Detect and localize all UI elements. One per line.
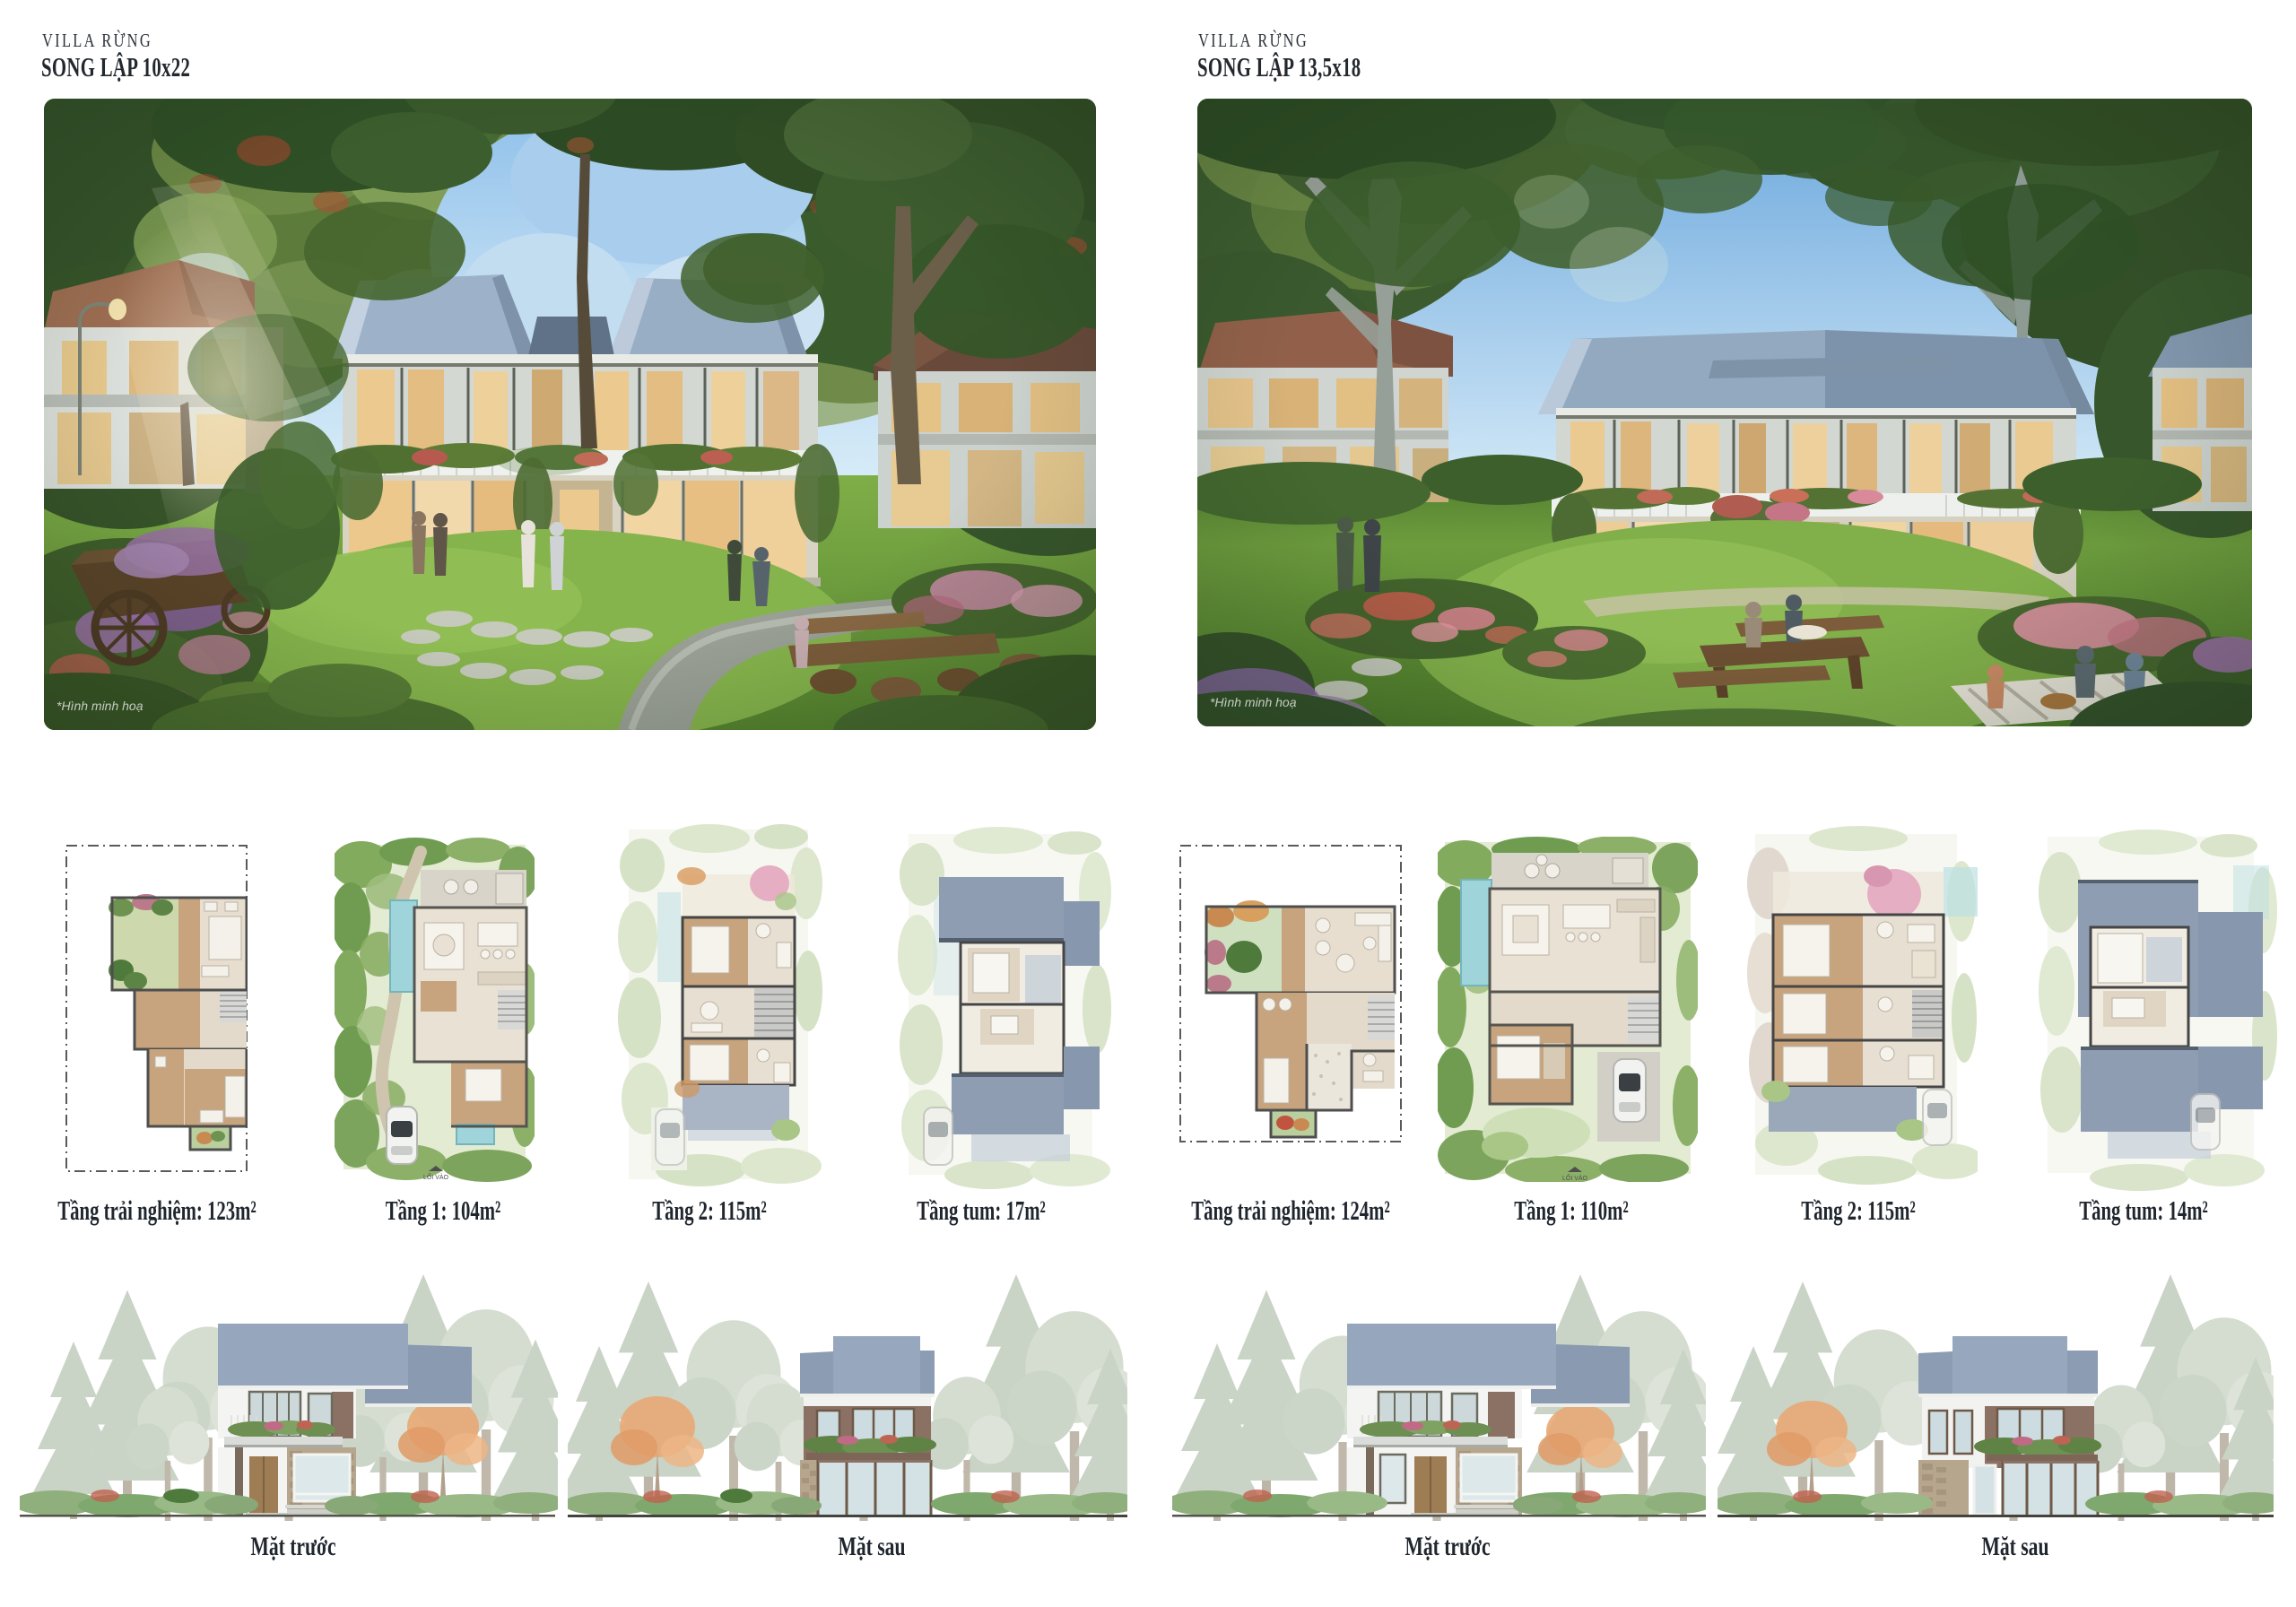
svg-text:*Hình minh hoạ: *Hình minh hoạ bbox=[1210, 695, 1297, 709]
svg-text:*Hình minh hoạ: *Hình minh hoạ bbox=[57, 699, 143, 713]
